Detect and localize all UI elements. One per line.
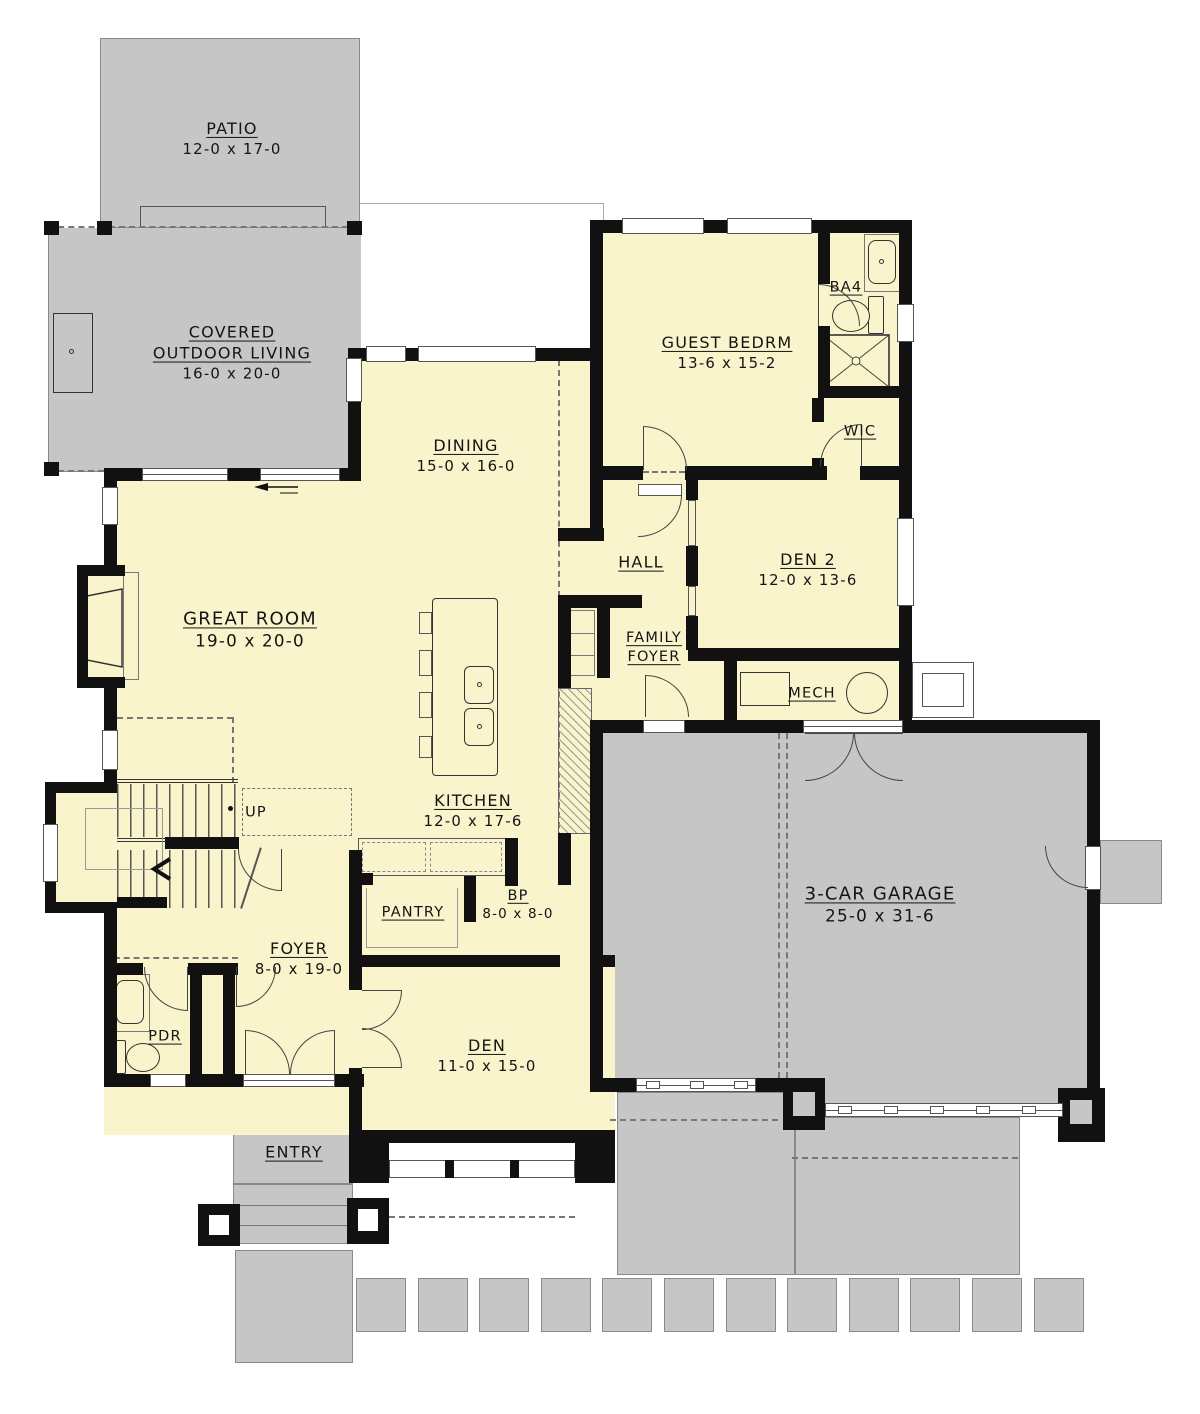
ac-unit-inner [922,673,964,707]
wall [505,838,518,886]
bar-stool [419,736,432,758]
paver [479,1278,529,1332]
paver [418,1278,468,1332]
stairs-up-label: UP [245,804,267,823]
wall [558,608,571,688]
garage-door-tab [884,1106,898,1114]
window [622,218,704,234]
paver [849,1278,899,1332]
garage-corner-notch [1070,1100,1092,1124]
foyer-ceiling-dashed [104,957,238,959]
pdr-toilet-bowl-icon [126,1043,160,1072]
entry-post-notch [209,1215,229,1235]
kitchen-appliance [430,842,502,872]
wall [590,220,603,530]
sink-drain-icon [477,682,482,687]
wall [685,466,827,480]
den-bay-windows [389,1160,575,1178]
room-name: WIC [844,423,876,442]
sliding-door-arrow-icon [252,481,300,497]
window [366,346,406,362]
room-label-patio: PATIO 12-0 x 17-0 [183,119,282,159]
porch-post [347,221,362,235]
porch-post [44,462,59,476]
room-name: PATIO [183,119,282,140]
paver [602,1278,652,1332]
wall [349,955,362,990]
paver-row [356,1278,1096,1332]
front-door-threshold [243,1074,335,1087]
wall [812,398,824,422]
double-door-threshold [803,720,903,733]
stairs-top-edge [117,779,238,783]
garage-floor-right [790,1078,1087,1105]
wall [899,220,912,306]
wall [558,595,642,608]
ba4-toilet-tank-icon [868,296,884,334]
room-label-dining: DINING 15-0 x 16-0 [417,436,516,476]
room-label-hall: HALL [618,553,664,574]
wall [1087,888,1100,1110]
wall [899,604,912,732]
stairs-direction-chevron-icon [148,858,174,880]
wall [558,528,604,541]
driveway-right [795,1117,1020,1275]
floor-plan: PATIO 12-0 x 17-0 COVERED OUTDOOR LIVING… [0,0,1200,1414]
room-label-ba4: BA4 [830,279,863,298]
window [418,346,536,362]
room-label-foyer: FOYER 8-0 x 19-0 [255,939,343,979]
room-label-covered-outdoor-living: COVERED OUTDOOR LIVING 16-0 x 20-0 [153,323,311,384]
paver [972,1278,1022,1332]
room-label-pdr: PDR [148,1028,182,1047]
garage-door-tab [1022,1106,1036,1114]
room-label-bp: BP 8-0 x 8-0 [482,887,553,923]
den-bay-post [575,1143,615,1183]
room-name: 3-CAR GARAGE [805,882,956,905]
mech-equipment [740,672,790,706]
window [102,487,118,525]
den-bay-dashed [389,1216,575,1218]
paver [664,1278,714,1332]
wall [590,1078,636,1092]
room-dims: 25-0 x 31-6 [805,906,956,928]
sliding-door [260,468,340,481]
wall [590,720,603,1092]
room-name: FOYER [626,648,682,667]
room-dims: 16-0 x 20-0 [153,364,311,383]
wall [818,326,830,392]
window [150,1074,186,1087]
pdr-sink-icon [116,980,144,1024]
fireplace-hearth [123,572,139,680]
roof-line [360,203,604,350]
garage-door-tab [838,1106,852,1114]
wall [686,616,698,650]
cased-opening [688,586,696,616]
room-label-family-foyer: FAMILY FOYER [626,629,682,667]
room-label-den: DEN 11-0 x 15-0 [438,1036,537,1076]
porch-post [97,221,112,235]
window [727,218,812,234]
wall [818,386,912,398]
room-dims: 19-0 x 20-0 [183,631,317,653]
wall [603,466,643,480]
window [102,730,118,770]
wall [686,478,698,500]
room-name: DEN 2 [759,550,858,571]
room-dims: 12-0 x 13-6 [759,571,858,590]
great-room-ceiling-dashed-v [232,717,234,783]
garage-door-tab [734,1081,748,1089]
garage-stoop [1100,840,1162,904]
room-name: FOYER [255,939,343,960]
wall [464,876,476,922]
bar-stool [419,692,432,718]
wall [223,975,235,1077]
room-dims: 11-0 x 15-0 [438,1057,537,1076]
room-label-guest-bedrm: GUEST BEDRM 13-6 x 15-2 [662,333,793,373]
entry-post-notch [358,1209,378,1231]
room-name: DEN [438,1036,537,1057]
bar-stool [419,612,432,634]
room-label-den2: DEN 2 12-0 x 13-6 [759,550,858,590]
entry-landing-paver [235,1250,353,1363]
wall [688,648,912,661]
wall [104,1074,150,1087]
room-name: PDR [148,1028,182,1047]
room-dims: 12-0 x 17-0 [183,140,282,159]
room-dims: 8-0 x 8-0 [482,906,553,924]
sink-drain-icon [477,724,482,729]
paver [787,1278,837,1332]
room-name: HALL [618,553,664,574]
bar-stool [419,650,432,676]
wall [188,963,238,975]
room-name: ENTRY [265,1143,323,1164]
wall [818,232,830,284]
fireplace-icon [86,588,124,668]
wall [104,913,117,1087]
room-label-mech: MECH [788,685,836,704]
garage-door-tab [930,1106,944,1114]
room-dims: 13-6 x 15-2 [662,354,793,373]
porch-post [44,221,59,235]
room-name: DINING [417,436,516,457]
ba4-sink-drain-icon [879,259,884,264]
paver [1034,1278,1084,1332]
wall [45,902,117,913]
room-dims: 15-0 x 16-0 [417,457,516,476]
window [897,518,914,606]
apron-dashed-right [792,1157,1018,1159]
room-name: COVERED [153,323,311,344]
wall [228,468,260,481]
water-heater-icon [846,672,888,714]
guest-door-opening-dashed [643,471,685,473]
garage-corner-notch [793,1092,815,1116]
kitchen-appliance [362,842,426,872]
wall [349,873,373,885]
apron-dashed-left [610,1119,778,1121]
room-name: GREAT ROOM [183,607,317,630]
den-bay-mullion [445,1160,454,1178]
paver [726,1278,776,1332]
wall [165,837,239,849]
room-name: GUEST BEDRM [662,333,793,354]
wall [117,897,167,908]
window [346,358,362,402]
room-label-garage: 3-CAR GARAGE 25-0 x 31-6 [805,882,956,927]
wall [597,608,610,678]
garage-door-tab [976,1106,990,1114]
wall [104,468,117,488]
paver [541,1278,591,1332]
window [897,304,914,342]
wall [104,963,143,975]
den-bay-mullion [510,1160,519,1178]
wall [558,833,571,885]
ba4-shower-icon [822,334,890,388]
wall [340,468,361,481]
room-label-wic: WIC [844,423,876,442]
garage-door-tab [646,1081,660,1089]
door-threshold [643,720,685,733]
wall [860,466,912,480]
room-name: OUTDOOR LIVING [153,343,311,364]
room-name: FAMILY [626,629,682,648]
wall [104,525,117,565]
bp-counter [558,688,592,834]
garage-bay-dashed-2 [786,733,788,1078]
paver [910,1278,960,1332]
room-dims: 12-0 x 17-6 [424,812,523,831]
wall [104,688,117,730]
wall [77,565,88,688]
wall [603,955,615,967]
room-dims: 8-0 x 19-0 [255,960,343,979]
wall [349,955,560,967]
window [43,824,58,882]
wall [349,1068,362,1130]
wall [1087,720,1100,848]
room-label-entry: ENTRY [265,1143,323,1164]
wall [77,677,125,688]
stairs-leader-dot [228,806,233,811]
room-label-kitchen: KITCHEN 12-0 x 17-6 [424,791,523,831]
room-name: MECH [788,685,836,704]
paver [356,1278,406,1332]
porch-edge-dashed [48,226,348,228]
room-name: PANTRY [382,904,445,923]
great-room-ceiling-dashed-h [117,717,233,719]
sliding-door [142,468,228,481]
outdoor-fireplace-knob-icon [69,349,74,354]
room-name: BP [482,887,553,906]
wall [349,850,362,955]
room-name: BA4 [830,279,863,298]
stairs-direction: UP [245,805,267,821]
room-label-great-room: GREAT ROOM 19-0 x 20-0 [183,607,317,652]
wall [186,1074,243,1087]
garage-door-tab [690,1081,704,1089]
garage-bay-dashed-1 [778,733,780,1078]
wall [686,546,698,586]
room-label-pantry: PANTRY [382,904,445,923]
entry-steps [233,1184,353,1244]
den-bay-post [349,1143,389,1183]
wall [349,1130,615,1143]
wall [899,340,912,520]
cased-opening [688,500,696,546]
wall [190,975,202,1077]
room-name: KITCHEN [424,791,523,812]
